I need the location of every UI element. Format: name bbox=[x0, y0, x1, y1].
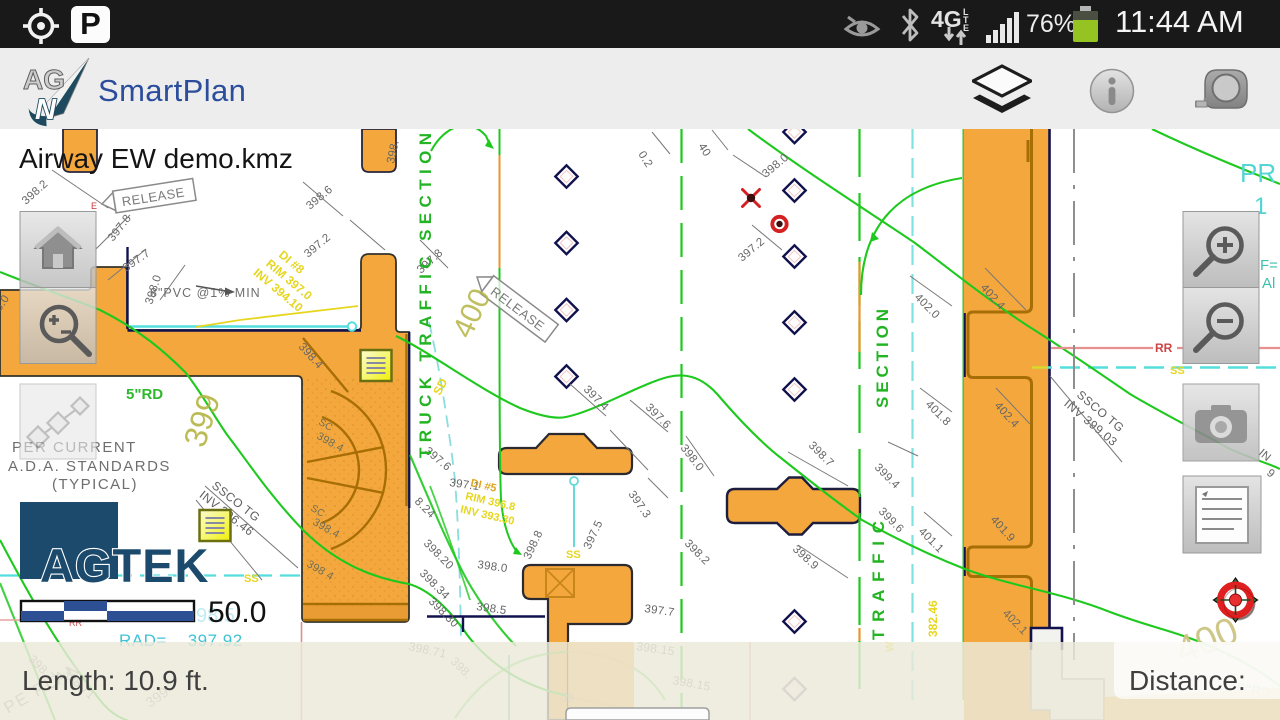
svg-text:N: N bbox=[35, 94, 57, 126]
svg-text:RR: RR bbox=[1155, 341, 1173, 355]
svg-text:382.46: 382.46 bbox=[926, 600, 940, 637]
svg-text:Distance:: Distance: bbox=[1129, 665, 1246, 696]
svg-text:50.0: 50.0 bbox=[208, 596, 266, 629]
svg-text:A.D.A. STANDARDS: A.D.A. STANDARDS bbox=[8, 458, 171, 475]
svg-text:Al: Al bbox=[1262, 275, 1275, 292]
svg-text:5"RD: 5"RD bbox=[126, 386, 163, 403]
svg-text:Length: 10.9 ft.: Length: 10.9 ft. bbox=[22, 665, 209, 696]
svg-text:Airway EW demo.kmz: Airway EW demo.kmz bbox=[19, 143, 293, 174]
svg-text:E: E bbox=[91, 201, 97, 211]
svg-text:F=: F= bbox=[1260, 257, 1278, 274]
svg-text:SS: SS bbox=[1170, 365, 1185, 377]
svg-text:(TYPICAL): (TYPICAL) bbox=[52, 476, 138, 493]
svg-text:AGTEK: AGTEK bbox=[40, 539, 210, 592]
svg-text:AG: AG bbox=[23, 64, 65, 95]
svg-text:SS: SS bbox=[566, 549, 581, 561]
svg-text:PR: PR bbox=[1240, 158, 1276, 188]
svg-text:SS: SS bbox=[244, 573, 259, 585]
